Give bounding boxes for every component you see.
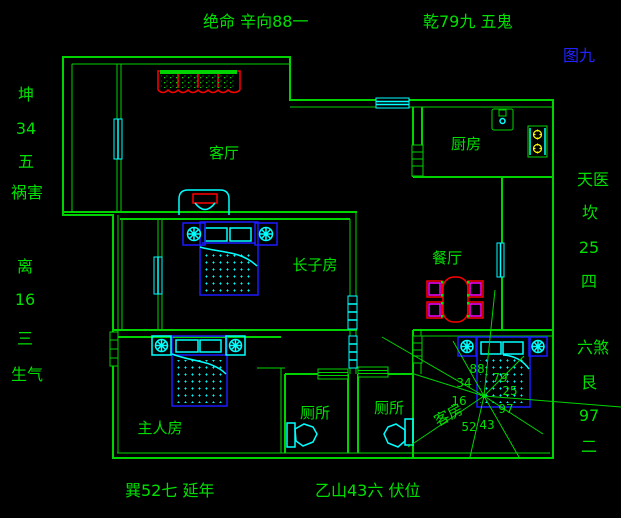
window-left-lower	[110, 332, 118, 366]
dining-chair	[468, 302, 483, 318]
dining-table	[443, 277, 468, 322]
label-gen: 艮	[581, 373, 597, 392]
chart-number-25: 25	[502, 384, 517, 398]
label-eldest-son-room: 长子房	[292, 256, 337, 274]
bed-master	[172, 336, 227, 406]
label-living-room: 客厅	[209, 144, 239, 162]
floor-plan-canvas: 绝命 辛向88一 乾79九 五鬼 图九 坤 34 五 祸害 离 16 三 生气 …	[0, 0, 621, 518]
window-top-wall	[376, 98, 409, 108]
toilet-fixture	[384, 419, 413, 447]
label-li: 离	[17, 257, 33, 276]
bed-eldest-son	[200, 222, 258, 295]
window-hall	[349, 336, 357, 368]
label-16: 16	[15, 290, 35, 309]
label-xun: 巽52七 延年	[125, 481, 214, 500]
kitchen-stove	[528, 126, 547, 157]
chart-number-52: 52	[461, 420, 476, 434]
label-tianyi: 天医	[577, 170, 609, 189]
window-dining	[497, 243, 504, 277]
label-toilet-2: 厕所	[374, 399, 404, 417]
label-shengqi: 生气	[11, 365, 43, 384]
floor-plan-screenshot: 绝命 辛向88一 乾79九 五鬼 图九 坤 34 五 祸害 离 16 三 生气 …	[0, 0, 621, 518]
figure-number: 图九	[563, 46, 595, 65]
window-toilet1	[318, 369, 348, 379]
label-qian: 乾79九 五鬼	[423, 12, 512, 31]
chart-number-16: 16	[451, 394, 466, 408]
label-er: 二	[581, 437, 597, 456]
label-kun: 坤	[18, 85, 34, 104]
nightstand-fan-icon	[458, 337, 476, 356]
label-wu: 五	[18, 152, 34, 171]
label-34: 34	[16, 119, 36, 138]
label-si: 四	[581, 272, 597, 291]
nightstand-fan-icon	[226, 336, 245, 355]
dining-chairs	[427, 281, 483, 318]
label-dining-room: 餐厅	[432, 249, 462, 267]
label-toilet-1: 厕所	[300, 404, 330, 422]
window-bedroom-right	[348, 296, 357, 329]
label-liusha: 六煞	[577, 338, 609, 357]
label-juming: 绝命 辛向88一	[203, 12, 308, 31]
sofa	[158, 70, 240, 93]
kitchen-sink	[492, 109, 513, 130]
window-toilet2	[358, 367, 388, 377]
chart-number-88: 88	[469, 362, 484, 376]
window-balcony	[114, 119, 122, 159]
label-kitchen: 厨房	[451, 135, 481, 153]
chart-number-79: 79	[492, 371, 507, 385]
window-kitchen	[412, 145, 423, 176]
dining-chair	[427, 281, 442, 297]
dining-chair	[427, 302, 442, 318]
label-huohai: 祸害	[11, 183, 43, 202]
label-master-room: 主人房	[137, 419, 182, 437]
window-closet	[154, 257, 162, 294]
dining-chair	[468, 281, 483, 297]
label-25: 25	[579, 238, 599, 257]
chart-number-43: 43	[479, 418, 494, 432]
chart-number-97: 97	[498, 402, 513, 416]
nightstand-fan-icon	[183, 223, 205, 245]
nightstand-fan-icon	[529, 337, 547, 356]
toilet-fixture	[287, 423, 317, 447]
chart-number-34: 34	[456, 376, 471, 390]
label-97: 97	[579, 406, 599, 425]
nightstand-fan-icon	[152, 336, 171, 355]
label-yishan: 乙山43六 伏位	[315, 481, 420, 500]
label-kan: 坎	[582, 203, 598, 222]
label-san: 三	[17, 329, 33, 348]
